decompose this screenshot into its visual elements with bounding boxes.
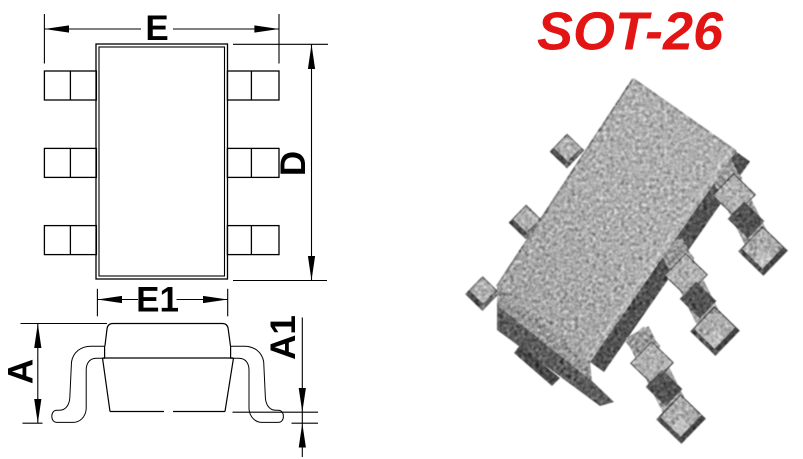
svg-text:E: E bbox=[145, 9, 168, 48]
svg-text:D: D bbox=[274, 151, 313, 176]
svg-text:SOT-26: SOT-26 bbox=[537, 2, 724, 62]
svg-text:A: A bbox=[2, 359, 41, 384]
svg-text:A1: A1 bbox=[264, 315, 303, 360]
svg-text:E1: E1 bbox=[136, 281, 179, 320]
